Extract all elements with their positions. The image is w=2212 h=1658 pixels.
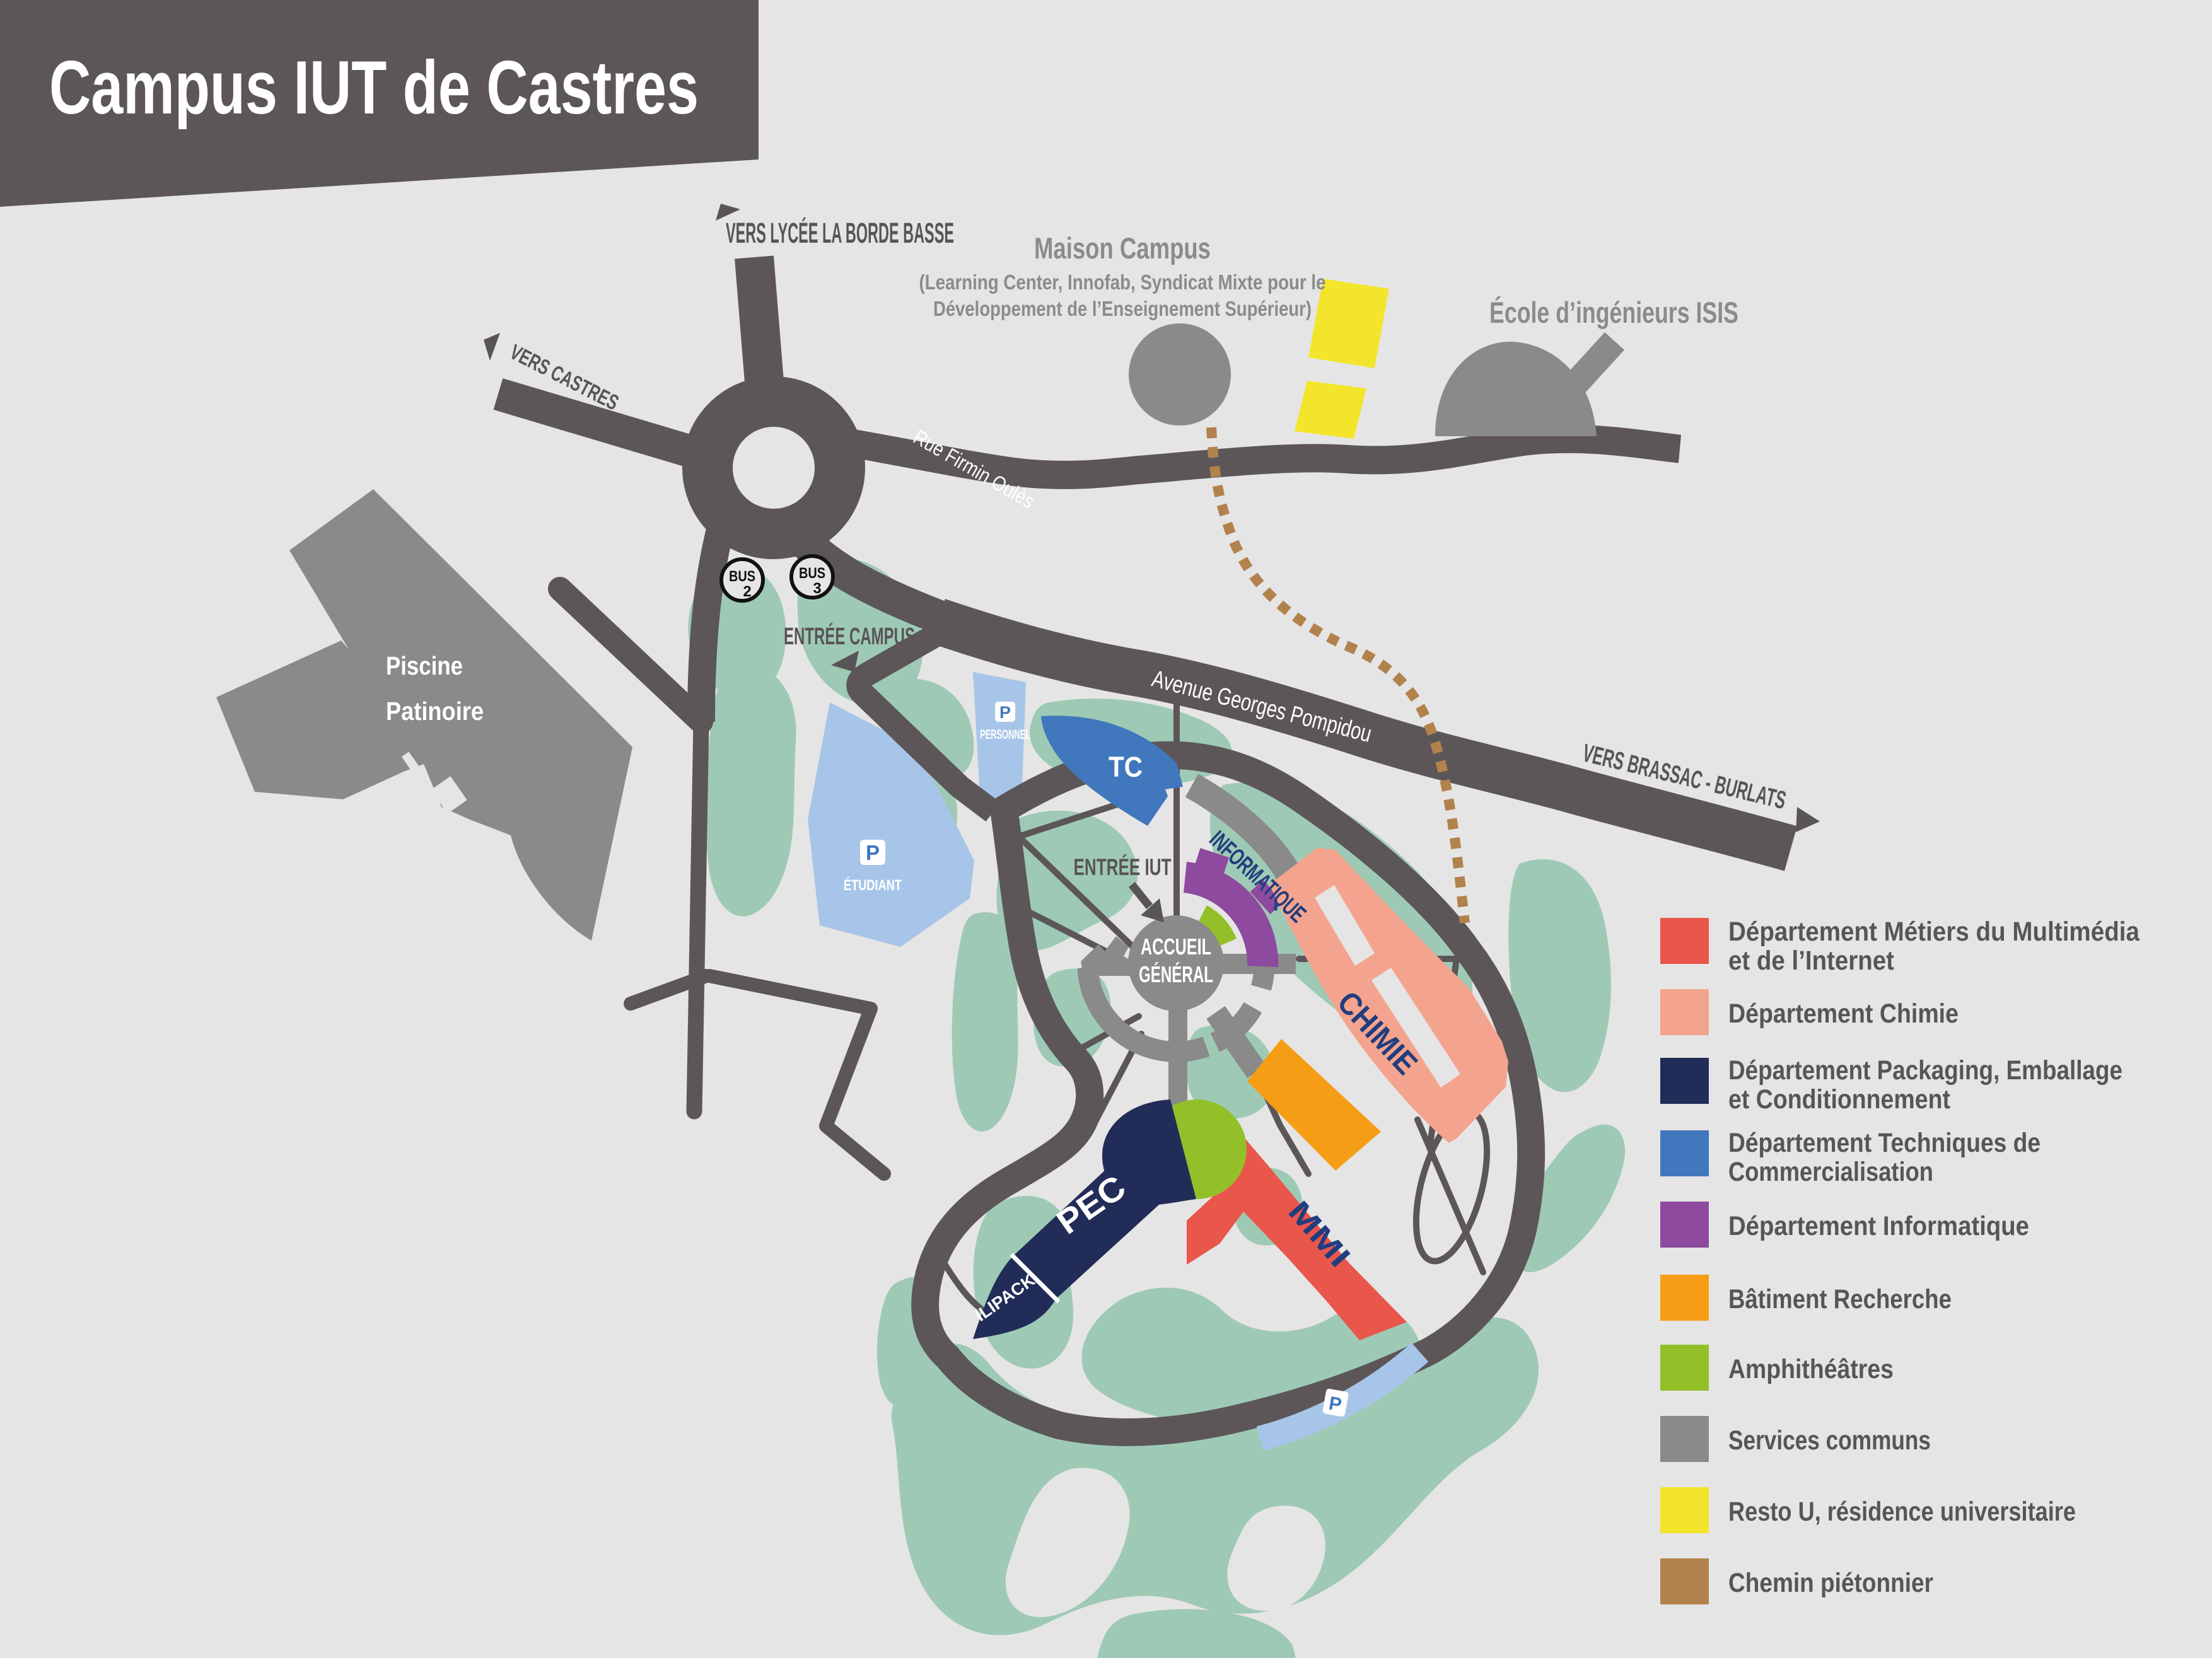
svg-text:BUS: BUS xyxy=(729,568,755,585)
svg-text:Département Métiers du Multimé: Département Métiers du Multimédia xyxy=(1728,917,2140,947)
svg-text:Services communs: Services communs xyxy=(1728,1425,1931,1456)
svg-text:ENTRÉE CAMPUS: ENTRÉE CAMPUS xyxy=(784,622,915,650)
svg-text:École d’ingénieurs ISIS: École d’ingénieurs ISIS xyxy=(1489,296,1738,329)
svg-text:Resto U, résidence universitai: Resto U, résidence universitaire xyxy=(1728,1497,2076,1527)
svg-text:Département Packaging, Emballa: Département Packaging, Emballage xyxy=(1728,1055,2122,1086)
svg-text:P: P xyxy=(866,841,880,864)
svg-text:Commercialisation: Commercialisation xyxy=(1728,1157,1933,1187)
svg-text:Département Informatique: Département Informatique xyxy=(1728,1211,2029,1241)
svg-text:Campus IUT de Castres: Campus IUT de Castres xyxy=(49,45,699,130)
svg-text:ACCUEIL: ACCUEIL xyxy=(1141,934,1211,959)
svg-text:VERS LYCÉE LA BORDE BASSE: VERS LYCÉE LA BORDE BASSE xyxy=(726,217,954,249)
svg-text:ÉTUDIANT: ÉTUDIANT xyxy=(844,876,902,894)
svg-text:P: P xyxy=(999,703,1011,722)
svg-text:et Conditionnement: et Conditionnement xyxy=(1728,1084,1950,1115)
svg-text:ENTRÉE IUT: ENTRÉE IUT xyxy=(1074,854,1172,880)
svg-text:et de l’Internet: et de l’Internet xyxy=(1728,946,1894,976)
svg-text:Amphithéâtres: Amphithéâtres xyxy=(1728,1354,1894,1384)
svg-text:GÉNÉRAL: GÉNÉRAL xyxy=(1139,961,1213,987)
svg-text:Département Chimie: Département Chimie xyxy=(1728,999,1959,1029)
svg-text:Département Techniques de: Département Techniques de xyxy=(1728,1128,2040,1158)
svg-text:Chemin piétonnier: Chemin piétonnier xyxy=(1728,1568,1933,1598)
svg-text:2: 2 xyxy=(743,583,751,600)
svg-text:PERSONNEL: PERSONNEL xyxy=(980,728,1030,742)
svg-text:Développement de l’Enseignemen: Développement de l’Enseignement Supérieu… xyxy=(933,297,1312,320)
svg-text:Piscine: Piscine xyxy=(386,651,463,680)
svg-text:Bâtiment Recherche: Bâtiment Recherche xyxy=(1728,1284,1952,1314)
svg-text:BUS: BUS xyxy=(799,565,825,582)
svg-text:(Learning Center, Innofab, Syn: (Learning Center, Innofab, Syndicat Mixt… xyxy=(919,270,1326,294)
svg-text:Patinoire: Patinoire xyxy=(386,697,484,726)
svg-text:TC: TC xyxy=(1109,751,1143,783)
svg-text:3: 3 xyxy=(813,580,821,597)
svg-text:Maison Campus: Maison Campus xyxy=(1034,231,1211,265)
